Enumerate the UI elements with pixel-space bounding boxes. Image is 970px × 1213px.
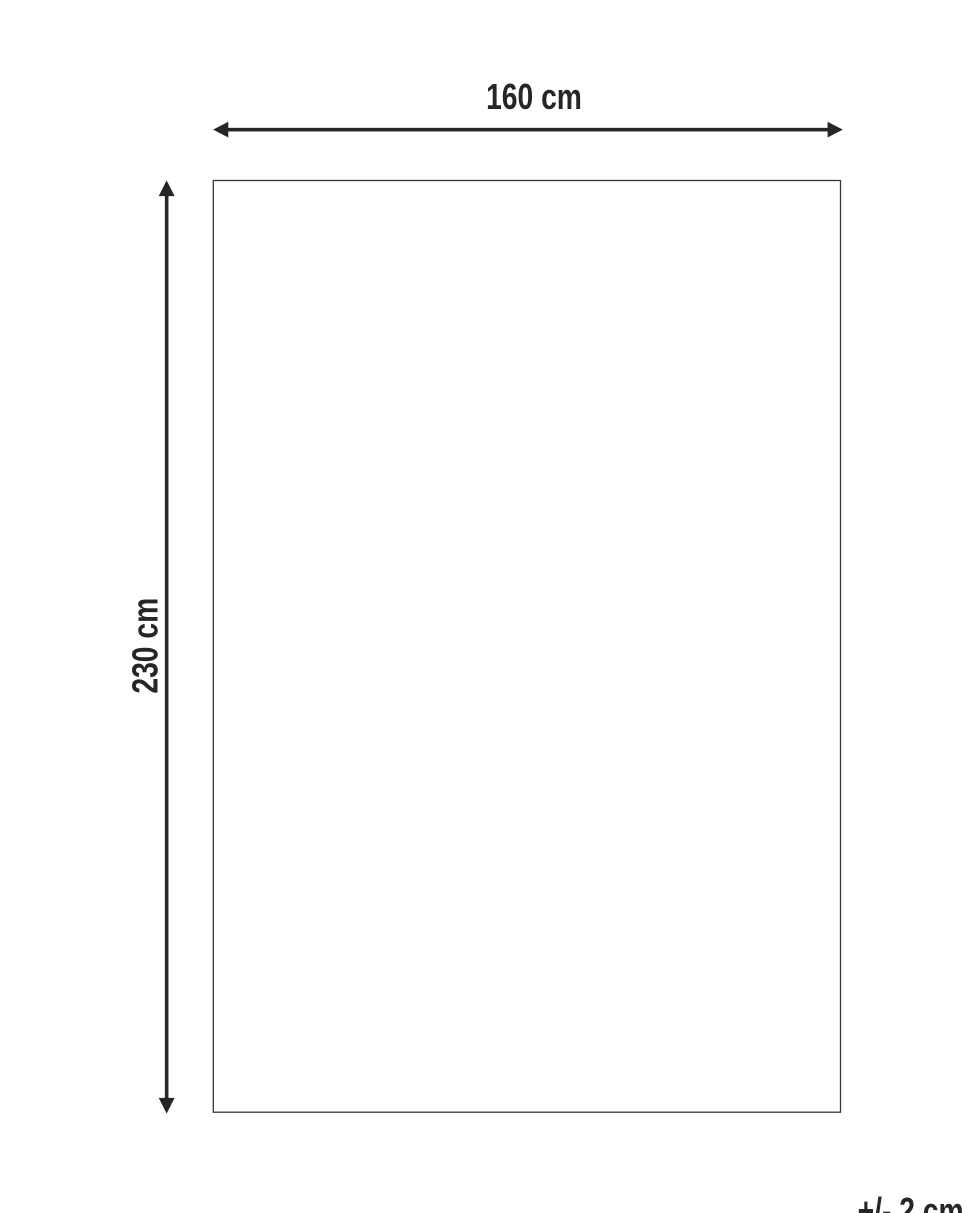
svg-text:230 cm: 230 cm xyxy=(125,598,165,694)
svg-text:+/- 2 cm: +/- 2 cm xyxy=(858,1191,964,1213)
svg-text:160 cm: 160 cm xyxy=(486,77,582,117)
